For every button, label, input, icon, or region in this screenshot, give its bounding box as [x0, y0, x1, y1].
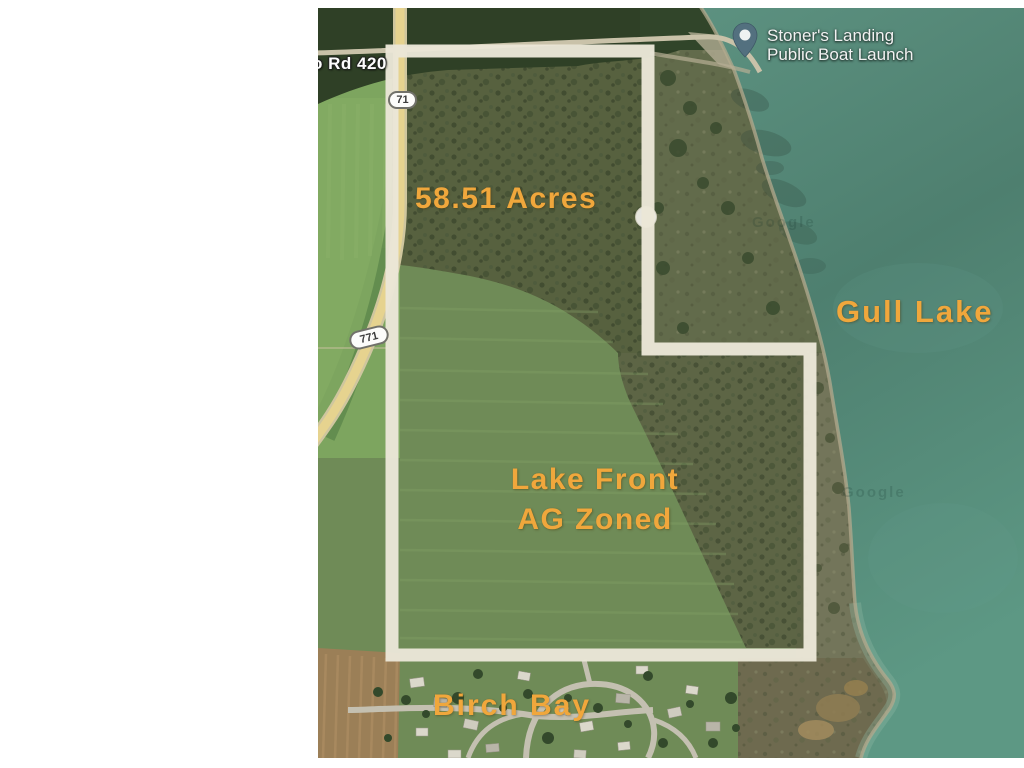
map-pin-icon [732, 22, 758, 58]
satellite-map: Stoner's Landing Public Boat Launch o Rd… [318, 8, 1024, 758]
terrain-artwork [318, 8, 1024, 758]
road-label-rd420: o Rd 420 [318, 54, 387, 74]
acreage-label: 58.51 Acres [415, 182, 597, 216]
poi-label-line1: Stoner's Landing [767, 26, 914, 45]
bay-label: Birch Bay [433, 689, 591, 723]
poi-label-line2: Public Boat Launch [767, 45, 914, 64]
poi-stoners-landing: Stoner's Landing Public Boat Launch [732, 22, 914, 64]
google-watermark: Google [842, 484, 906, 501]
route-shield-71: 71 [388, 91, 417, 109]
zoning-label-line2: AG Zoned [450, 500, 740, 540]
google-watermark: Google [752, 214, 816, 231]
poi-label: Stoner's Landing Public Boat Launch [767, 22, 914, 64]
zoning-label: Lake Front AG Zoned [450, 460, 740, 540]
zoning-label-line1: Lake Front [450, 460, 740, 500]
lake-name-label: Gull Lake [836, 294, 994, 330]
